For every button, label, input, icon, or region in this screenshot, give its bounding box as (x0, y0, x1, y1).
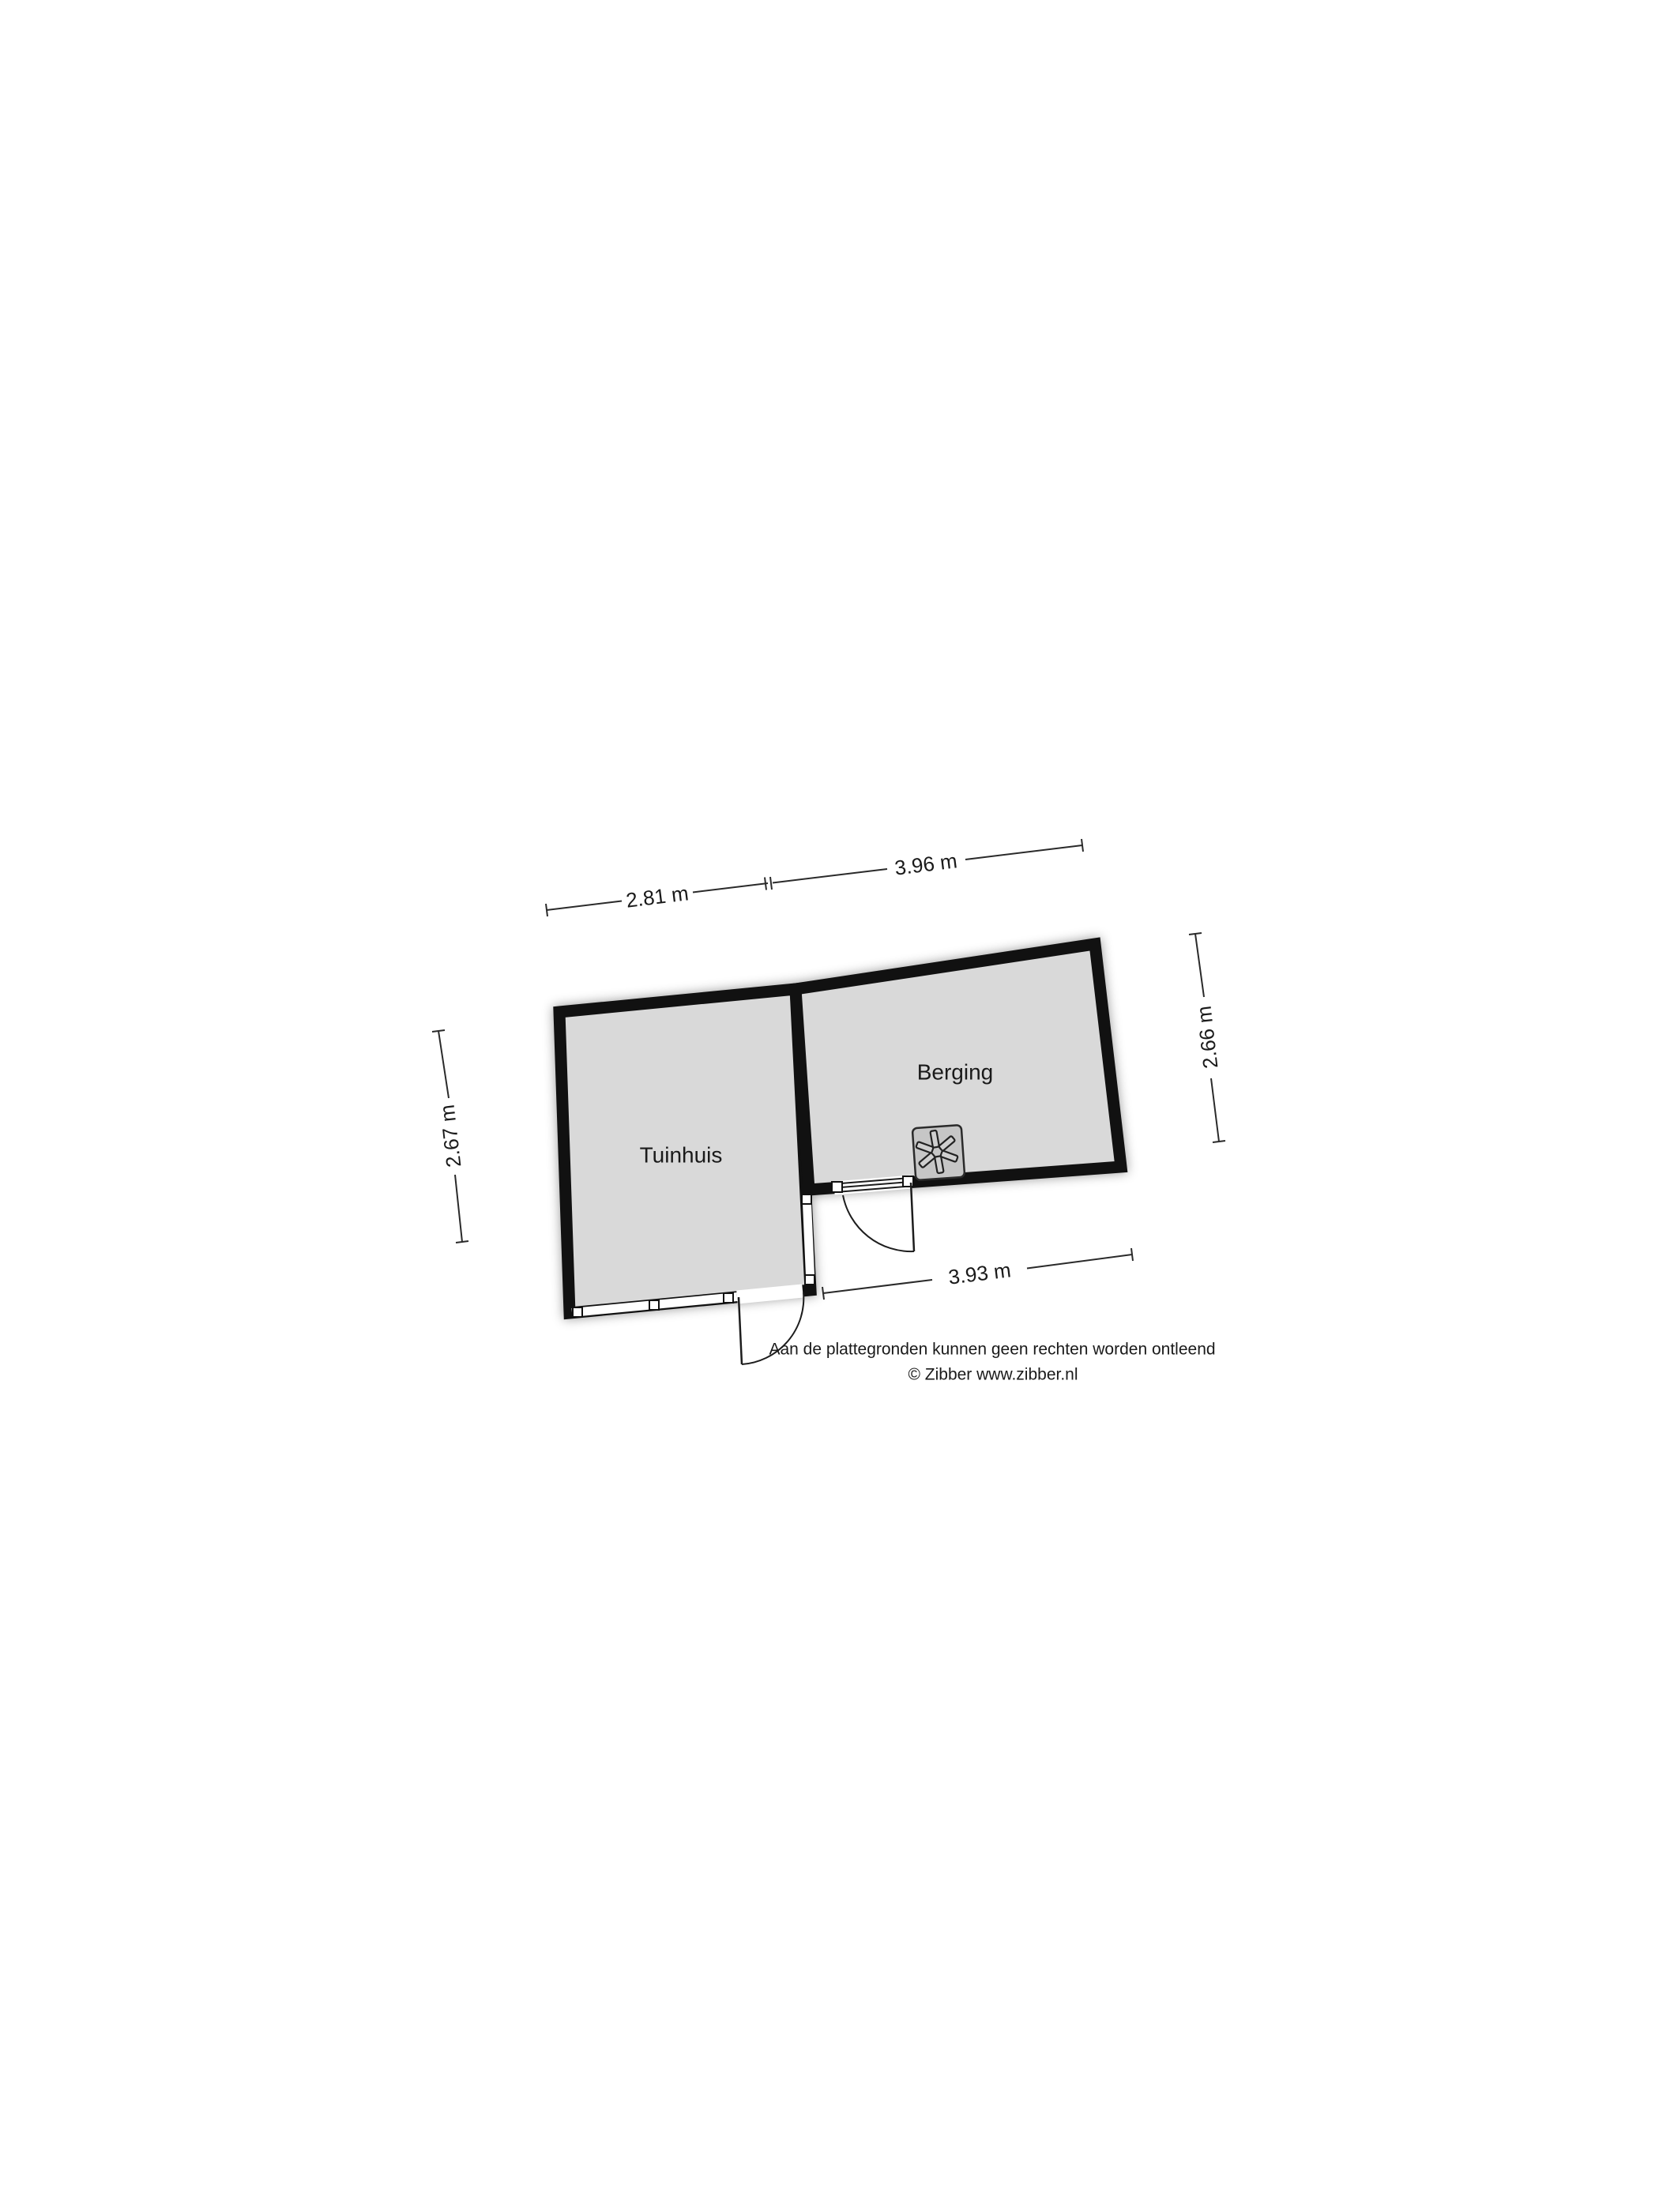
dimension-tuinhuis-width: 2.81 m (546, 878, 768, 917)
room-label-berging: Berging (917, 1060, 994, 1085)
footer-credit: © Zibber www.zibber.nl (908, 1366, 1078, 1384)
dimension-label: 2.67 m (435, 1104, 466, 1168)
dimension-label: 3.96 m (893, 848, 959, 879)
dimension-berging-bottom-width: 3.93 m (822, 1248, 1133, 1300)
footer-disclaimer: Aan de plattegronden kunnen geen rechten… (769, 1341, 1215, 1359)
stove-fan-icon (912, 1125, 965, 1180)
dimension-label: 3.93 m (947, 1258, 1013, 1288)
dimension-berging-height: 2.66 m (1189, 933, 1225, 1142)
building-outline (559, 944, 1121, 1313)
room-label-tuinhuis: Tuinhuis (640, 1143, 723, 1168)
dimension-label: 2.81 m (625, 881, 690, 912)
door-swing-icon-berging (832, 1176, 914, 1251)
dimension-tuinhuis-height: 2.67 m (432, 1030, 468, 1243)
floorplan-canvas: Tuinhuis Berging 2.81 m 3.96 m 2.67 m 2.… (0, 0, 1659, 2212)
dimension-berging-width: 3.96 m (770, 839, 1083, 890)
dimension-label: 2.66 m (1192, 1005, 1223, 1070)
